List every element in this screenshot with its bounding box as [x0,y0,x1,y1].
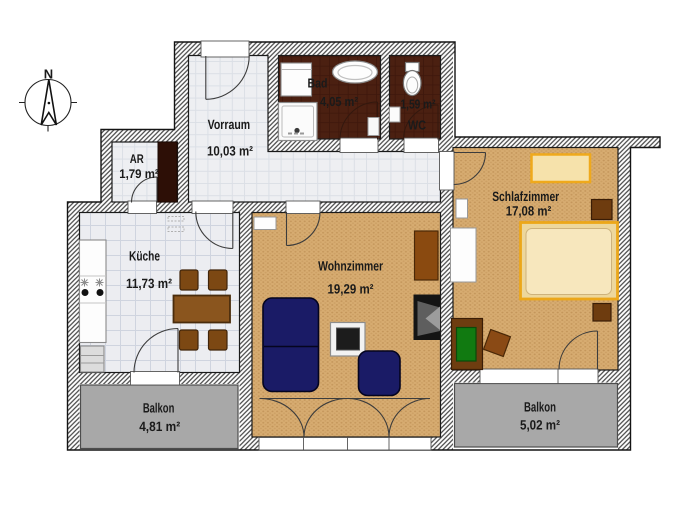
svg-text:10,03 m²: 10,03 m² [207,144,253,159]
svg-text:Küche: Küche [129,249,160,264]
svg-text:17,08 m²: 17,08 m² [506,203,552,218]
svg-text:4,05 m²: 4,05 m² [320,94,359,109]
svg-text:Balkon: Balkon [524,400,556,415]
svg-text:19,29 m²: 19,29 m² [328,282,374,297]
svg-text:Schlafzimmer: Schlafzimmer [492,189,560,204]
svg-text:N: N [44,67,53,82]
svg-text:1,59 m²: 1,59 m² [401,97,437,112]
svg-text:4,81 m²: 4,81 m² [139,419,180,434]
svg-text:5,02 m²: 5,02 m² [520,418,560,433]
svg-text:1,79 m²: 1,79 m² [119,167,159,181]
svg-text:11,73 m²: 11,73 m² [126,276,172,291]
svg-text:Vorraum: Vorraum [208,117,251,132]
svg-text:AR: AR [130,152,144,166]
svg-text:Balkon: Balkon [143,401,175,416]
svg-text:Bad: Bad [308,76,328,91]
svg-text:WC: WC [408,118,426,133]
svg-text:Wohnzimmer: Wohnzimmer [318,259,384,274]
